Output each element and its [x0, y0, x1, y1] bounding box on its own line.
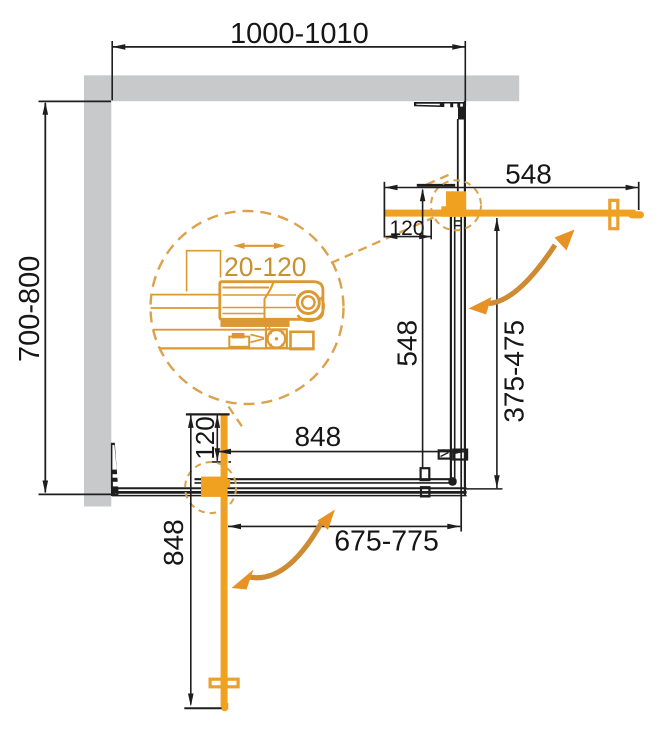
svg-text:848: 848 [294, 421, 341, 452]
svg-text:20-120: 20-120 [224, 252, 307, 282]
svg-text:1000-1010: 1000-1010 [230, 18, 369, 50]
svg-text:375-475: 375-475 [498, 320, 529, 423]
svg-text:548: 548 [505, 159, 552, 190]
svg-text:120: 120 [389, 217, 424, 240]
svg-text:120: 120 [190, 416, 220, 459]
svg-text:548: 548 [392, 320, 423, 367]
svg-text:700-800: 700-800 [14, 256, 46, 362]
svg-text:675-775: 675-775 [334, 525, 439, 557]
svg-text:848: 848 [158, 519, 189, 566]
